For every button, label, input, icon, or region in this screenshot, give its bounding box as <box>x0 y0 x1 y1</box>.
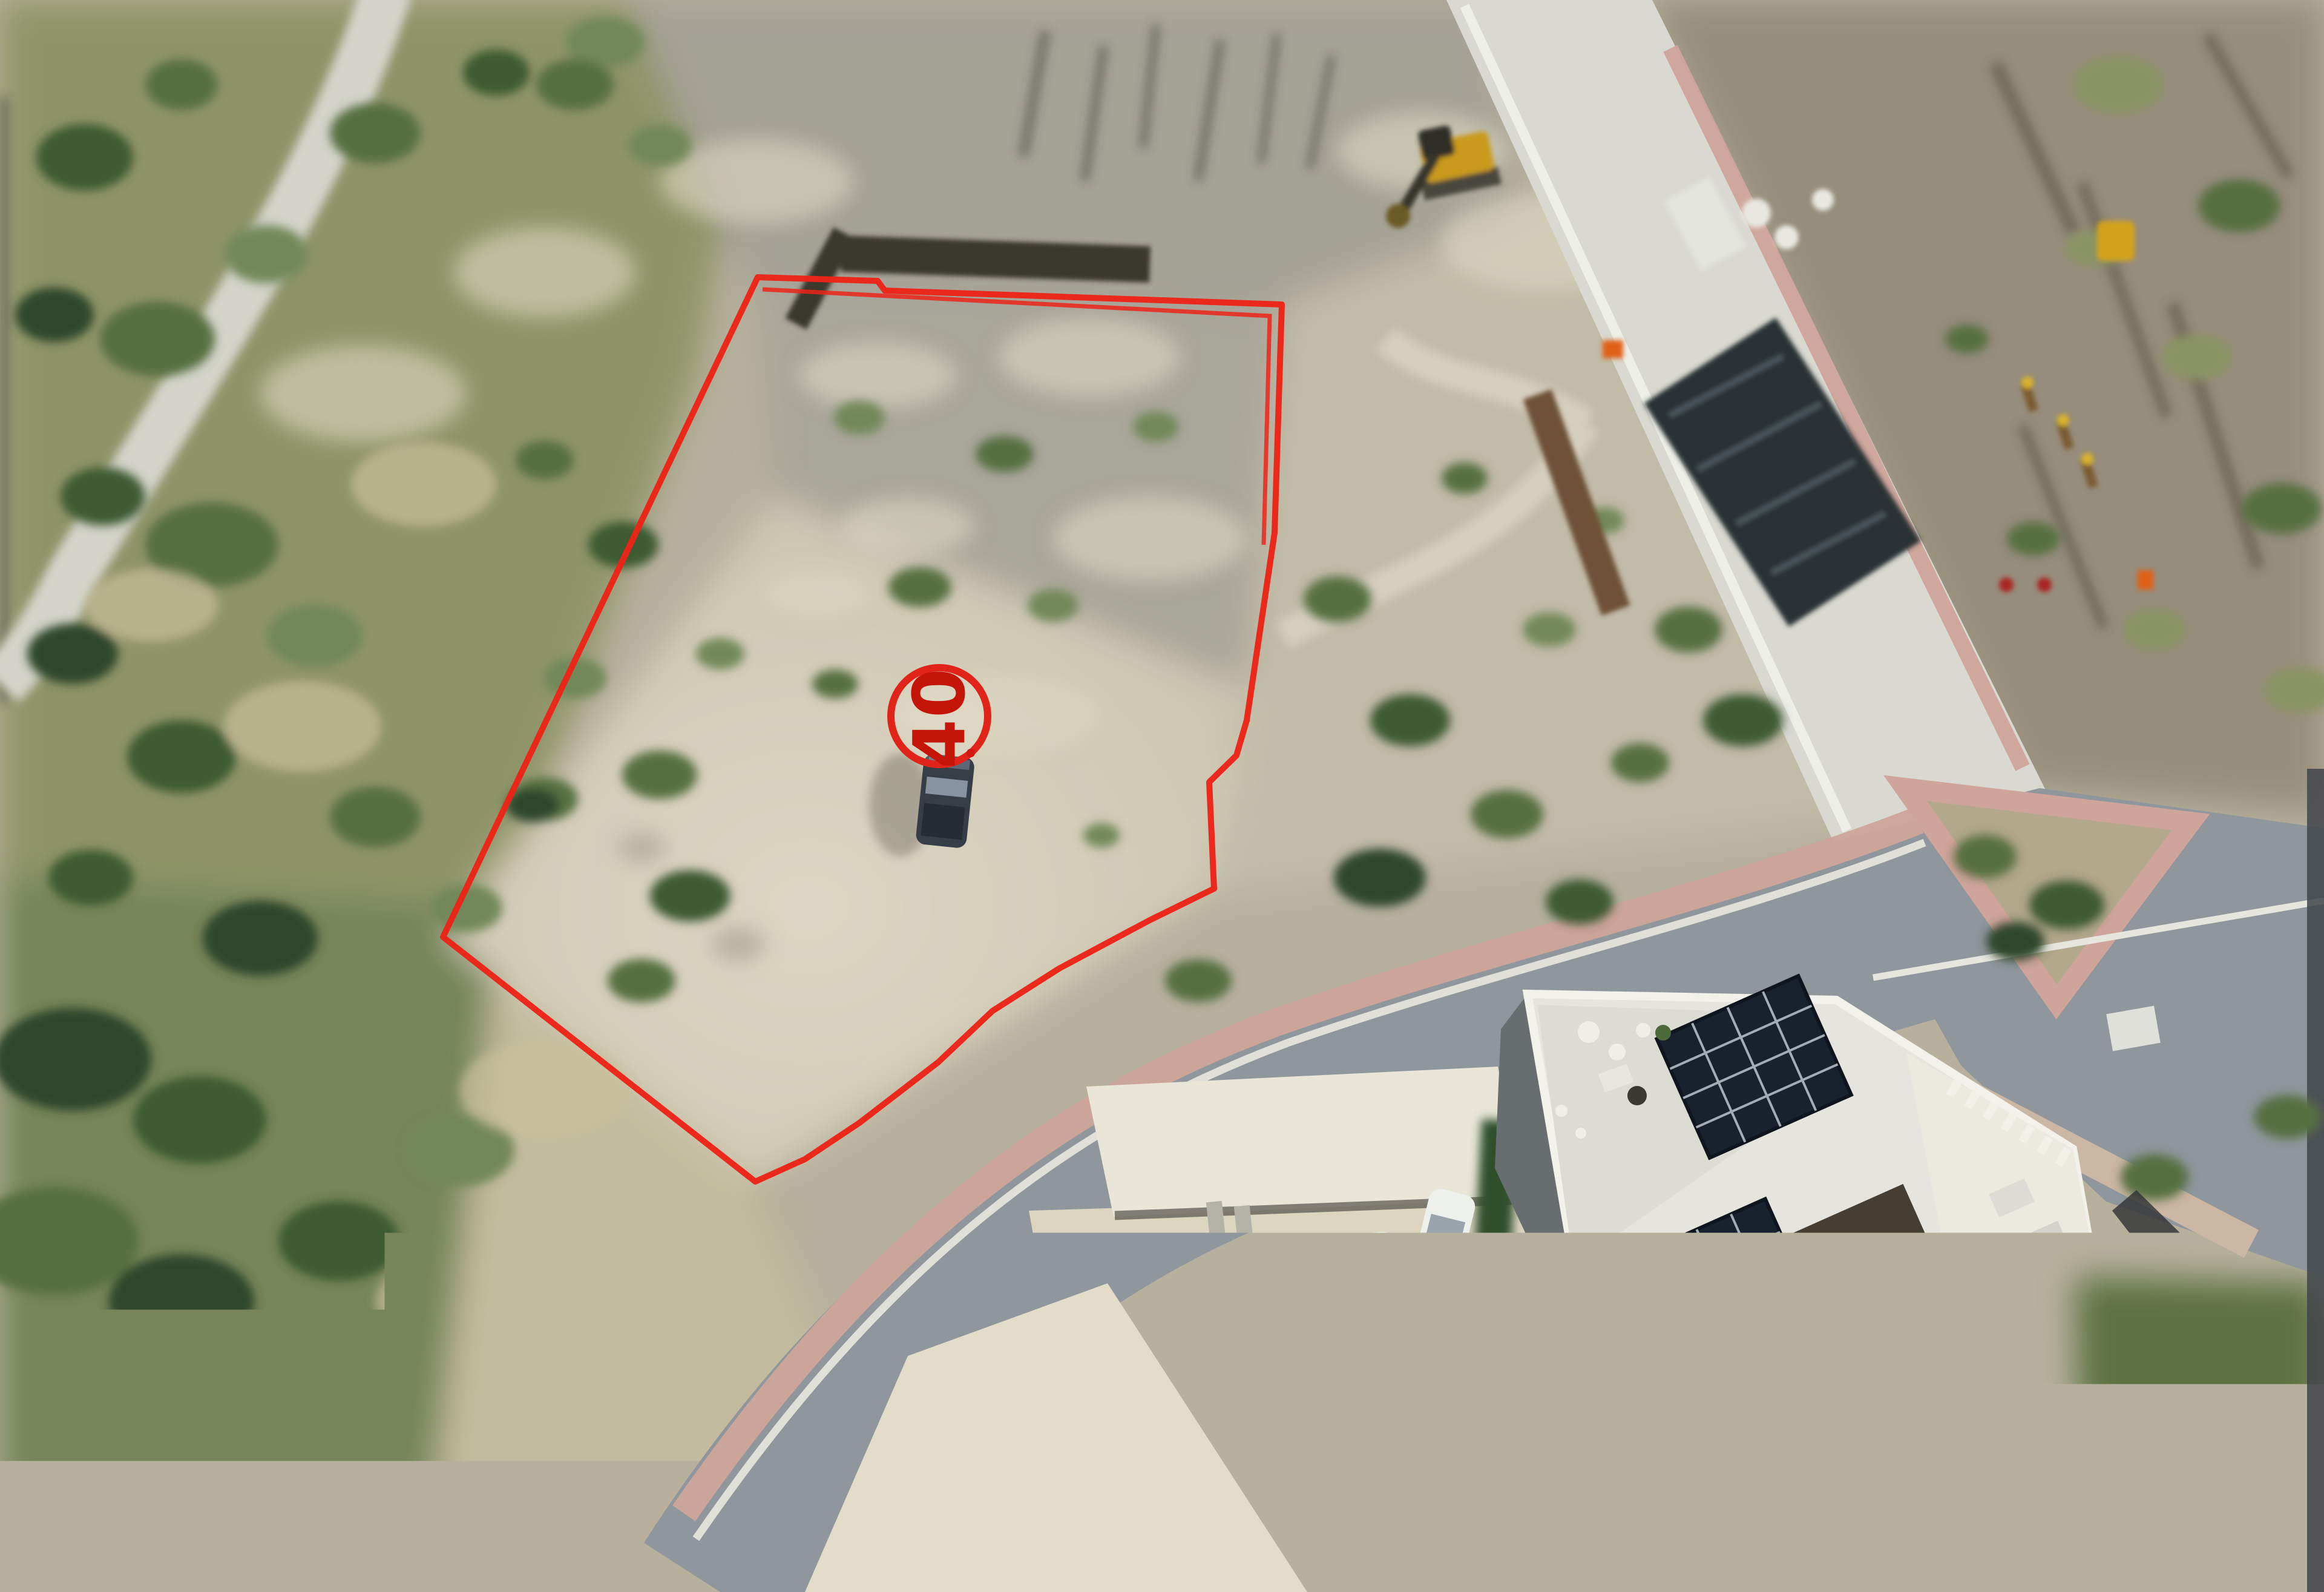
white-barrel-2 <box>1774 225 1799 249</box>
lawn-shade <box>1192 1468 1301 1534</box>
lot-number-tick <box>967 749 975 757</box>
photo-edge-strip <box>2307 769 2324 1592</box>
orange-cone-2 <box>2138 570 2153 590</box>
terrace-plant <box>1655 1025 1671 1041</box>
red-marker <box>1999 577 2014 592</box>
lot-number-badge: 40 <box>891 667 988 769</box>
yellow-equipment <box>2097 221 2135 261</box>
red-marker-2 <box>2037 577 2052 592</box>
sun-lounger-3 <box>1261 1341 1296 1358</box>
grill <box>1627 1086 1647 1105</box>
aerial-photo-viewport: 40 <box>0 0 2324 1592</box>
white-barrel-3 <box>1812 189 1834 211</box>
swimming-pool <box>1145 1234 1403 1351</box>
orange-cone <box>1603 340 1623 358</box>
sun-lounger-4 <box>1307 1350 1342 1367</box>
aerial-photo-canvas: 40 <box>0 0 2324 1592</box>
pickup-bed <box>921 803 965 840</box>
white-barrel <box>1742 199 1771 228</box>
